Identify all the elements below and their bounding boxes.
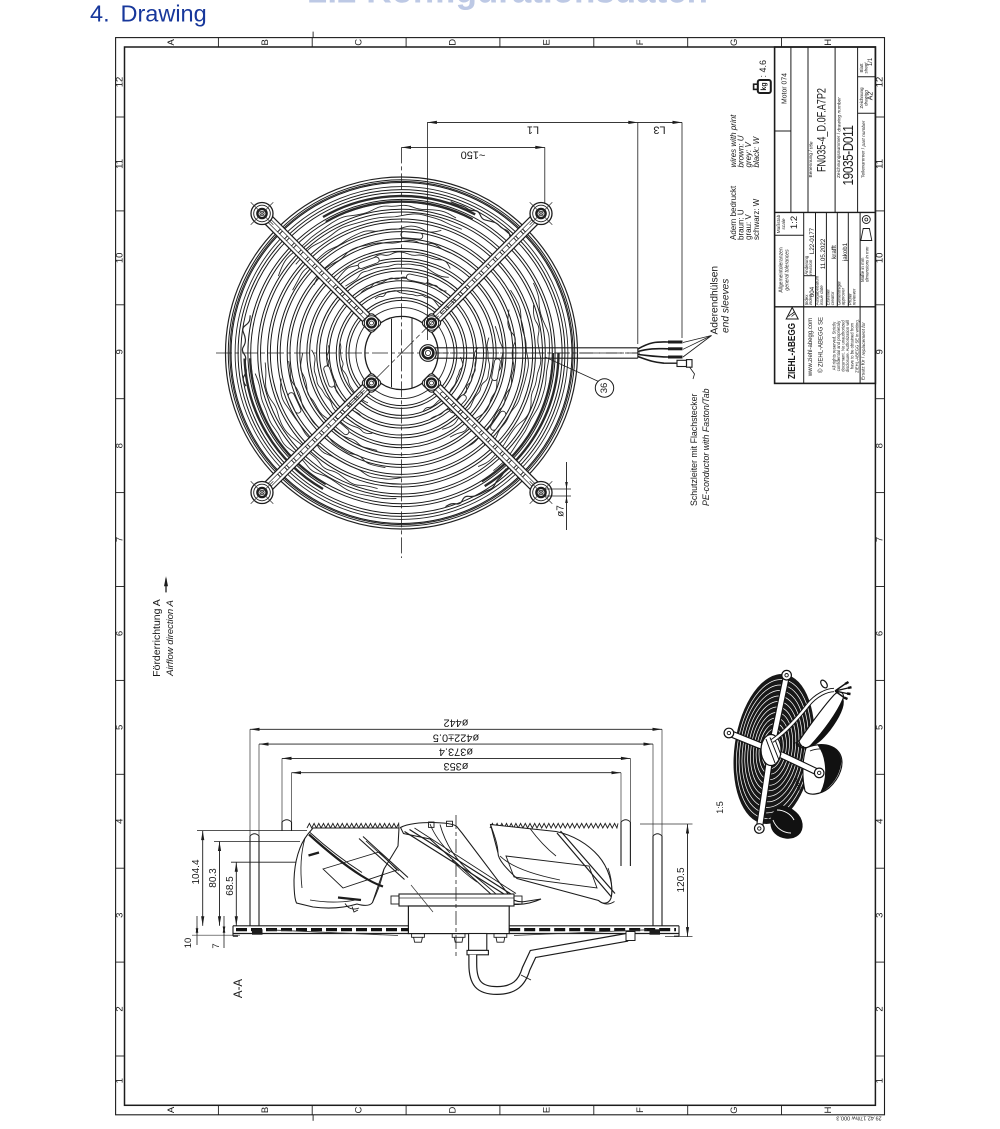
svg-text:10: 10 [115,253,126,264]
svg-text:D: D [448,1106,459,1113]
svg-text:B: B [260,39,271,45]
svg-text:1: 1 [115,1078,126,1083]
svg-text:A: A [166,38,177,45]
svg-text:ø373.4: ø373.4 [439,746,473,758]
svg-text:scale: scale [781,218,787,230]
svg-text:104.4: 104.4 [191,859,202,884]
svg-text:12: 12 [115,77,126,88]
svg-text:general tolerances: general tolerances [785,249,791,291]
svg-text:~150: ~150 [461,149,486,161]
svg-text:80.3: 80.3 [208,868,219,888]
svg-text:4.: 4. [90,0,110,26]
svg-text:L22-0177: L22-0177 [809,227,816,254]
svg-text:© ZIEHL-ABEGG SE: © ZIEHL-ABEGG SE [818,317,825,373]
svg-text:1/1: 1/1 [868,57,874,66]
svg-text:Airflow direction A: Airflow direction A [165,600,176,677]
svg-text:A-A: A-A [233,979,245,999]
svg-text:Förderrichtung A: Förderrichtung A [151,599,163,677]
svg-text:A2: A2 [868,92,875,101]
svg-text:schwarz: W: schwarz: W [752,198,761,240]
svg-text:5: 5 [115,725,126,730]
svg-text:1:5: 1:5 [715,801,725,814]
svg-text:4: 4 [115,819,126,824]
svg-text:D: D [448,39,459,46]
svg-text:8: 8 [115,443,126,448]
svg-text:PE-conductor with Faston/Tab: PE-conductor with Faston/Tab [701,388,711,506]
svg-text:6: 6 [875,631,886,636]
svg-text:2.2 Konfigurationsdaten: 2.2 Konfigurationsdaten [308,0,708,11]
svg-text:11: 11 [115,159,126,169]
svg-text:revision: revision [808,259,813,275]
svg-text:Schutzleiter mit Flachstecker: Schutzleiter mit Flachstecker [689,393,699,506]
svg-text:ZIEHL-ABEGG SE in writing.: ZIEHL-ABEGG SE in writing. [854,319,859,373]
svg-text:black: W: black: W [752,135,761,167]
svg-text:68.5: 68.5 [225,876,236,896]
svg-text:L3: L3 [653,124,665,136]
svg-text:creator: creator [830,291,835,305]
svg-text:: 4.6: : 4.6 [758,60,768,78]
svg-text:120.5: 120.5 [676,867,687,892]
svg-text:kg: kg [761,82,768,90]
svg-text:8: 8 [875,443,886,448]
svg-text:ø422±0.5: ø422±0.5 [433,731,479,743]
svg-text:7: 7 [211,943,222,948]
svg-text:Ersatz für / replacement for: Ersatz für / replacement for [861,322,867,380]
svg-text:H: H [823,39,834,46]
svg-text:krafft: krafft [831,245,838,259]
svg-text:ø442: ø442 [443,717,468,729]
svg-text:G: G [729,1106,740,1113]
svg-text:F: F [635,39,646,45]
svg-text:9: 9 [115,349,126,354]
svg-text:ZIEHL-ABEGG: ZIEHL-ABEGG [786,323,798,379]
svg-text:36: 36 [599,383,610,394]
svg-text:ø7: ø7 [556,505,567,517]
svg-text:Benennung / title: Benennung / title [808,141,814,177]
svg-text:B: B [260,1107,271,1113]
svg-text:Aderendhülsen: Aderendhülsen [709,266,720,335]
svg-text:end sleeves: end sleeves [720,279,731,333]
svg-text:A: A [166,1106,177,1113]
svg-text:2: 2 [875,1006,886,1011]
svg-text:1: 1 [875,1078,886,1083]
svg-text:3: 3 [875,913,886,918]
svg-text:10: 10 [183,938,194,949]
svg-text:Drawing: Drawing [121,0,207,26]
svg-text:F: F [635,1107,646,1113]
svg-text:Motor 074: Motor 074 [780,73,789,104]
svg-text:dimensions in mm: dimensions in mm [864,246,869,282]
svg-text:5: 5 [875,725,886,730]
svg-text:L1: L1 [527,124,539,136]
svg-text:7: 7 [115,537,126,542]
svg-text:C: C [354,1106,365,1113]
svg-text:Teilenummer / part number: Teilenummer / part number [861,120,867,178]
svg-text:6: 6 [115,631,126,636]
svg-text:FN035-4_D.0F.A7P2: FN035-4_D.0F.A7P2 [815,88,829,172]
svg-text:approver: approver [841,287,846,305]
svg-text:G: G [729,39,740,46]
svg-text:reviewer: reviewer [852,288,857,305]
svg-text:www.ziehl-abegg.com: www.ziehl-abegg.com [808,318,814,377]
svg-text:11.05.2022: 11.05.2022 [820,238,827,269]
svg-text:3: 3 [115,913,126,918]
svg-text:2: 2 [115,1006,126,1011]
svg-text:19035-D011: 19035-D011 [841,125,857,185]
svg-text:issue date: issue date [819,285,824,306]
svg-text:E: E [541,1107,552,1113]
svg-text:jakob1: jakob1 [842,242,849,262]
svg-text:1:2: 1:2 [789,216,800,229]
svg-text:ø353: ø353 [443,760,468,772]
svg-text:4: 4 [875,819,886,824]
svg-text:29.42.17/hw 000.3: 29.42.17/hw 000.3 [836,1115,881,1121]
svg-text:H: H [823,1106,834,1113]
svg-text:C: C [354,39,365,46]
svg-text:7: 7 [875,537,886,542]
svg-text:E: E [541,39,552,45]
